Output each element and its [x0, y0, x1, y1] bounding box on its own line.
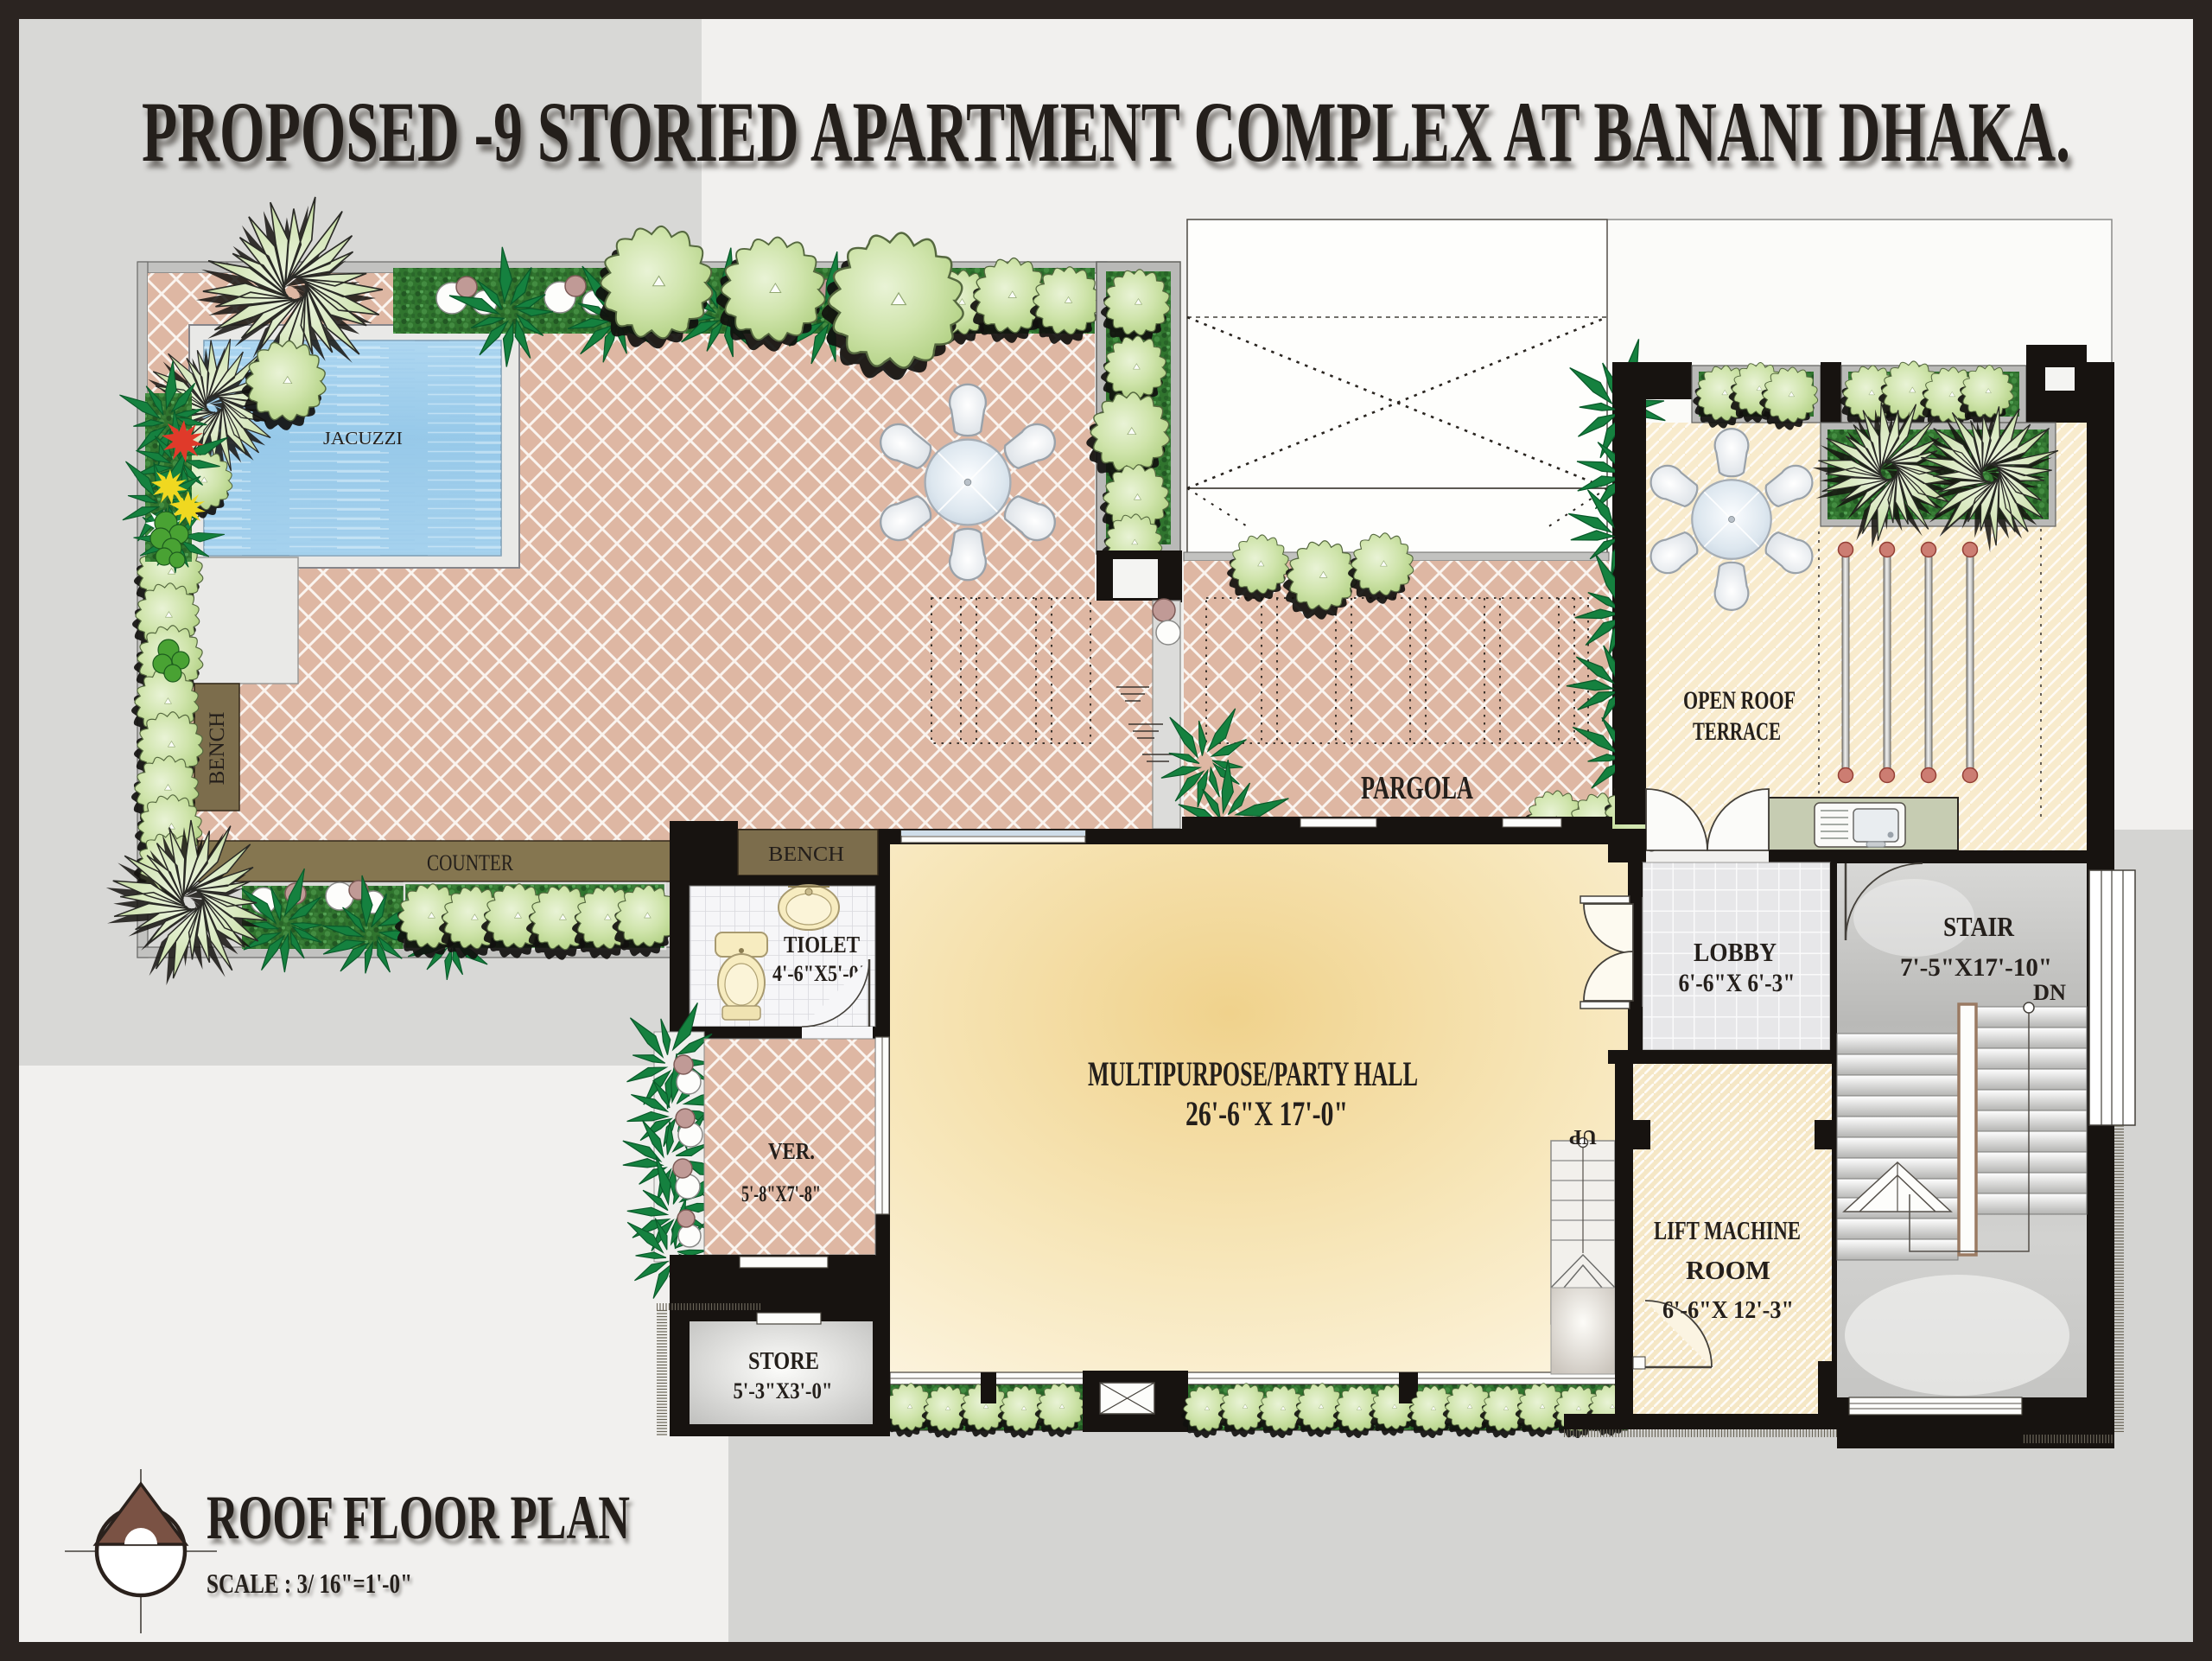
svg-text:PARGOLA: PARGOLA	[1361, 770, 1473, 806]
svg-text:COUNTER: COUNTER	[427, 850, 514, 875]
svg-text:5'-3"X3'-0": 5'-3"X3'-0"	[734, 1378, 833, 1403]
svg-text:MULTIPURPOSE/PARTY HALL: MULTIPURPOSE/PARTY HALL	[1088, 1054, 1418, 1093]
svg-text:ROOM: ROOM	[1686, 1255, 1770, 1285]
svg-text:SCALE : 3/ 16"=1'-0": SCALE : 3/ 16"=1'-0"	[207, 1568, 412, 1599]
svg-text:STORE: STORE	[748, 1348, 819, 1375]
svg-text:26'-6"X 17'-0": 26'-6"X 17'-0"	[1185, 1094, 1348, 1133]
svg-text:STAIR: STAIR	[1943, 911, 2015, 942]
svg-text:PROPOSED -9 STORIED APARTMENT: PROPOSED -9 STORIED APARTMENT COMPLEX AT…	[142, 84, 2070, 180]
svg-text:LIFT MACHINE: LIFT MACHINE	[1654, 1215, 1801, 1245]
svg-text:5'-8"X7'-8": 5'-8"X7'-8"	[741, 1181, 821, 1206]
svg-text:BENCH: BENCH	[206, 712, 229, 786]
svg-text:LOBBY: LOBBY	[1694, 937, 1777, 967]
svg-text:ROOF FLOOR PLAN: ROOF FLOOR PLAN	[207, 1483, 630, 1552]
svg-text:DN: DN	[2033, 980, 2066, 1005]
svg-text:6'-6"X 6'-3": 6'-6"X 6'-3"	[1679, 969, 1796, 997]
svg-text:TIOLET: TIOLET	[784, 932, 860, 958]
svg-text:6'-6"X 12'-3": 6'-6"X 12'-3"	[1662, 1296, 1794, 1324]
svg-text:JACUZZI: JACUZZI	[323, 428, 403, 449]
svg-text:TERRACE: TERRACE	[1693, 717, 1781, 746]
svg-text:OPEN ROOF: OPEN ROOF	[1683, 686, 1796, 715]
svg-text:UP: UP	[1569, 1125, 1597, 1148]
svg-text:VER.: VER.	[768, 1138, 815, 1164]
svg-text:7'-5"X17'-10": 7'-5"X17'-10"	[1900, 953, 2052, 982]
svg-text:BENCH: BENCH	[768, 843, 844, 866]
